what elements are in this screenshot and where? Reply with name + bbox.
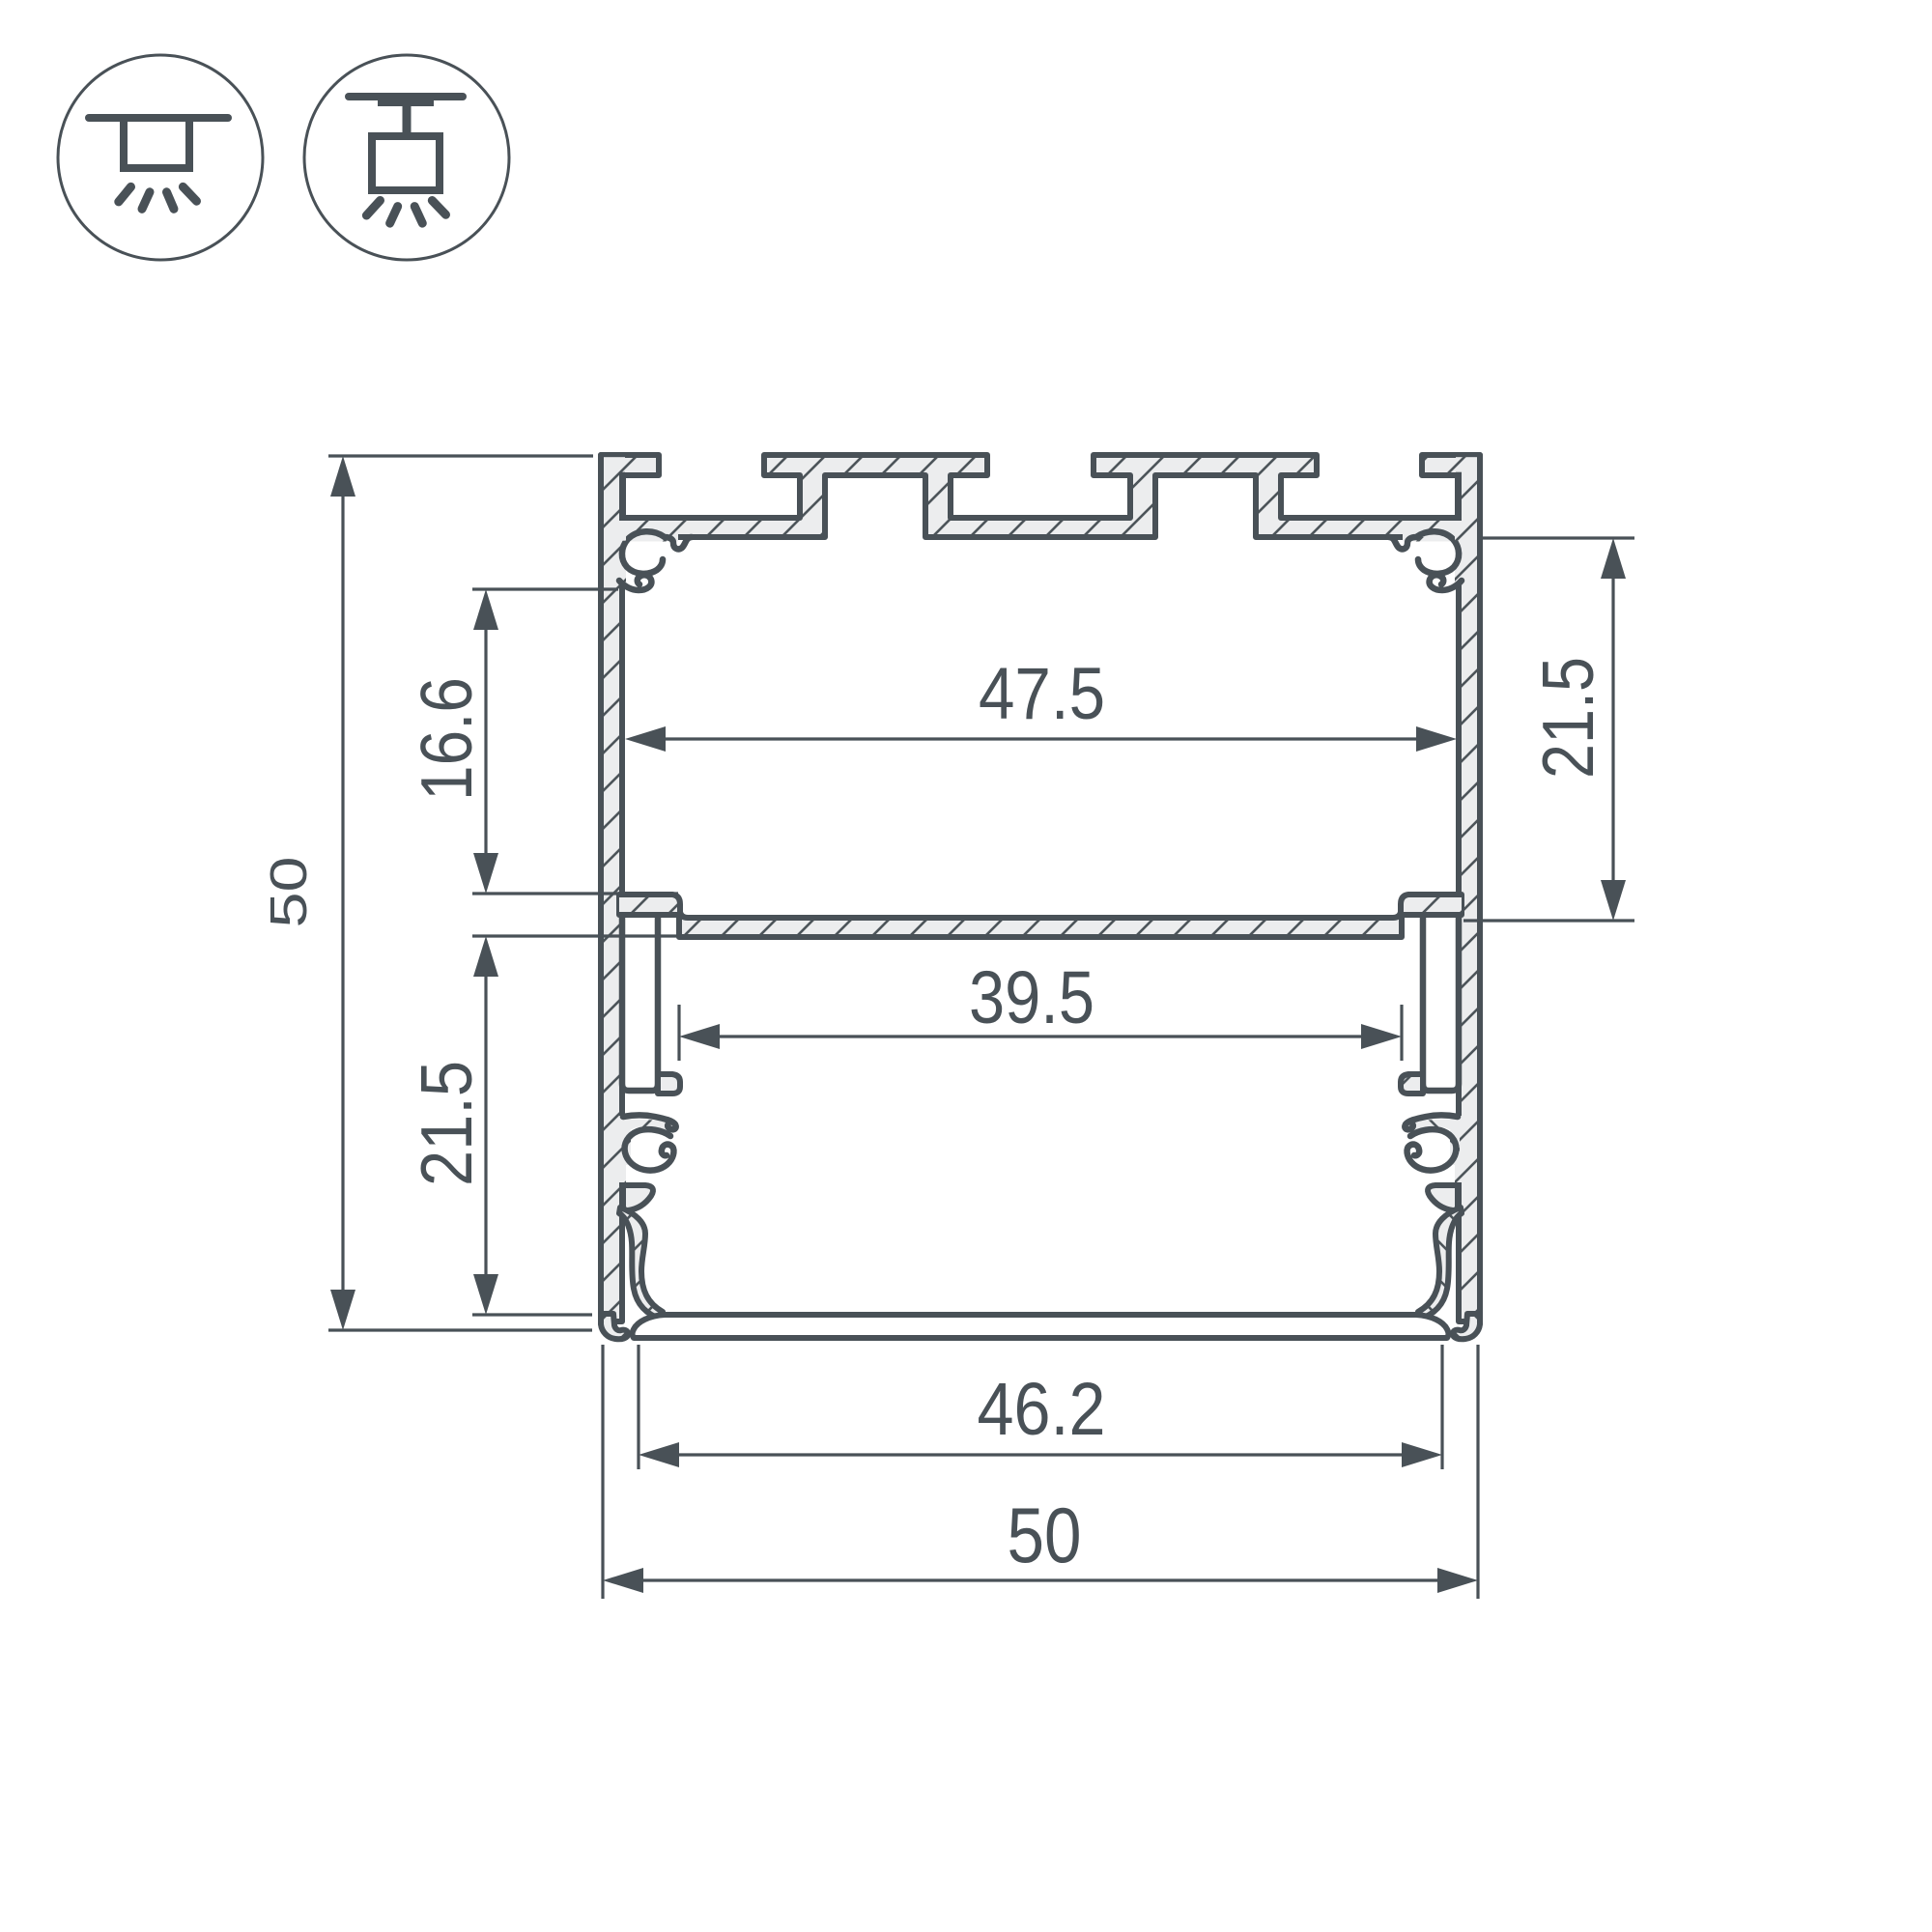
svg-text:50: 50 [261,857,318,928]
svg-text:21.5: 21.5 [1527,657,1608,779]
svg-text:47.5: 47.5 [979,653,1105,735]
svg-text:39.5: 39.5 [969,956,1094,1039]
svg-text:46.2: 46.2 [978,1368,1106,1451]
svg-text:16.6: 16.6 [406,677,487,801]
svg-text:21.5: 21.5 [406,1061,487,1186]
svg-text:50: 50 [1008,1492,1082,1579]
